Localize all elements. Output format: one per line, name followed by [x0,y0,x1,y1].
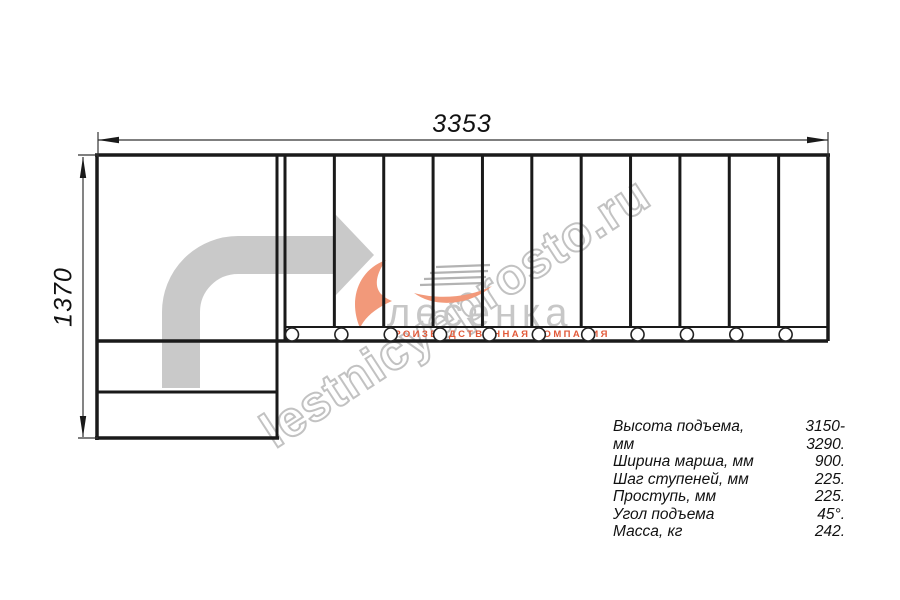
spec-row-march-width: Ширина марша, мм 900. [613,453,845,471]
staircase-plan-drawing: lestnicyeprosto.ru лесенка ПРОИЗВОДСТВЕН… [0,0,900,600]
spec-label: Шаг ступеней, мм [613,471,749,489]
step-lines [334,155,778,327]
spec-value: 225. [815,471,845,489]
spec-value: 900. [815,453,845,471]
baluster-circles [286,328,793,341]
spec-value: 242. [815,523,845,541]
spec-value: 3150-3290. [768,418,845,453]
spec-label: Масса, кг [613,523,682,541]
baluster-circle [582,328,595,341]
baluster-circle [335,328,348,341]
spec-row-angle: Угол подъема 45°. [613,506,845,524]
spec-value: 45°. [817,506,845,524]
specs-list: Высота подъема, мм 3150-3290. Ширина мар… [613,418,845,541]
spec-label: Проступь, мм [613,488,716,506]
baluster-circle [483,328,496,341]
spec-value: 225. [815,488,845,506]
baluster-circle [730,328,743,341]
baluster-circle [779,328,792,341]
spec-label: Ширина марша, мм [613,453,754,471]
baluster-circle [434,328,447,341]
spec-label: Угол подъема [613,506,714,524]
dimension-width-label: 3353 [432,110,492,139]
spec-row-mass: Масса, кг 242. [613,523,845,541]
spec-row-step-pitch: Шаг ступеней, мм 225. [613,471,845,489]
baluster-circle [680,328,693,341]
baluster-circle [286,328,299,341]
dimension-height-label: 1370 [50,267,79,327]
baluster-circle [631,328,644,341]
plan-outline [95,155,830,440]
spec-row-height: Высота подъема, мм 3150-3290. [613,418,845,453]
baluster-circle [384,328,397,341]
spec-row-tread: Проступь, мм 225. [613,488,845,506]
baluster-circle [532,328,545,341]
spec-label: Высота подъема, мм [613,418,768,453]
